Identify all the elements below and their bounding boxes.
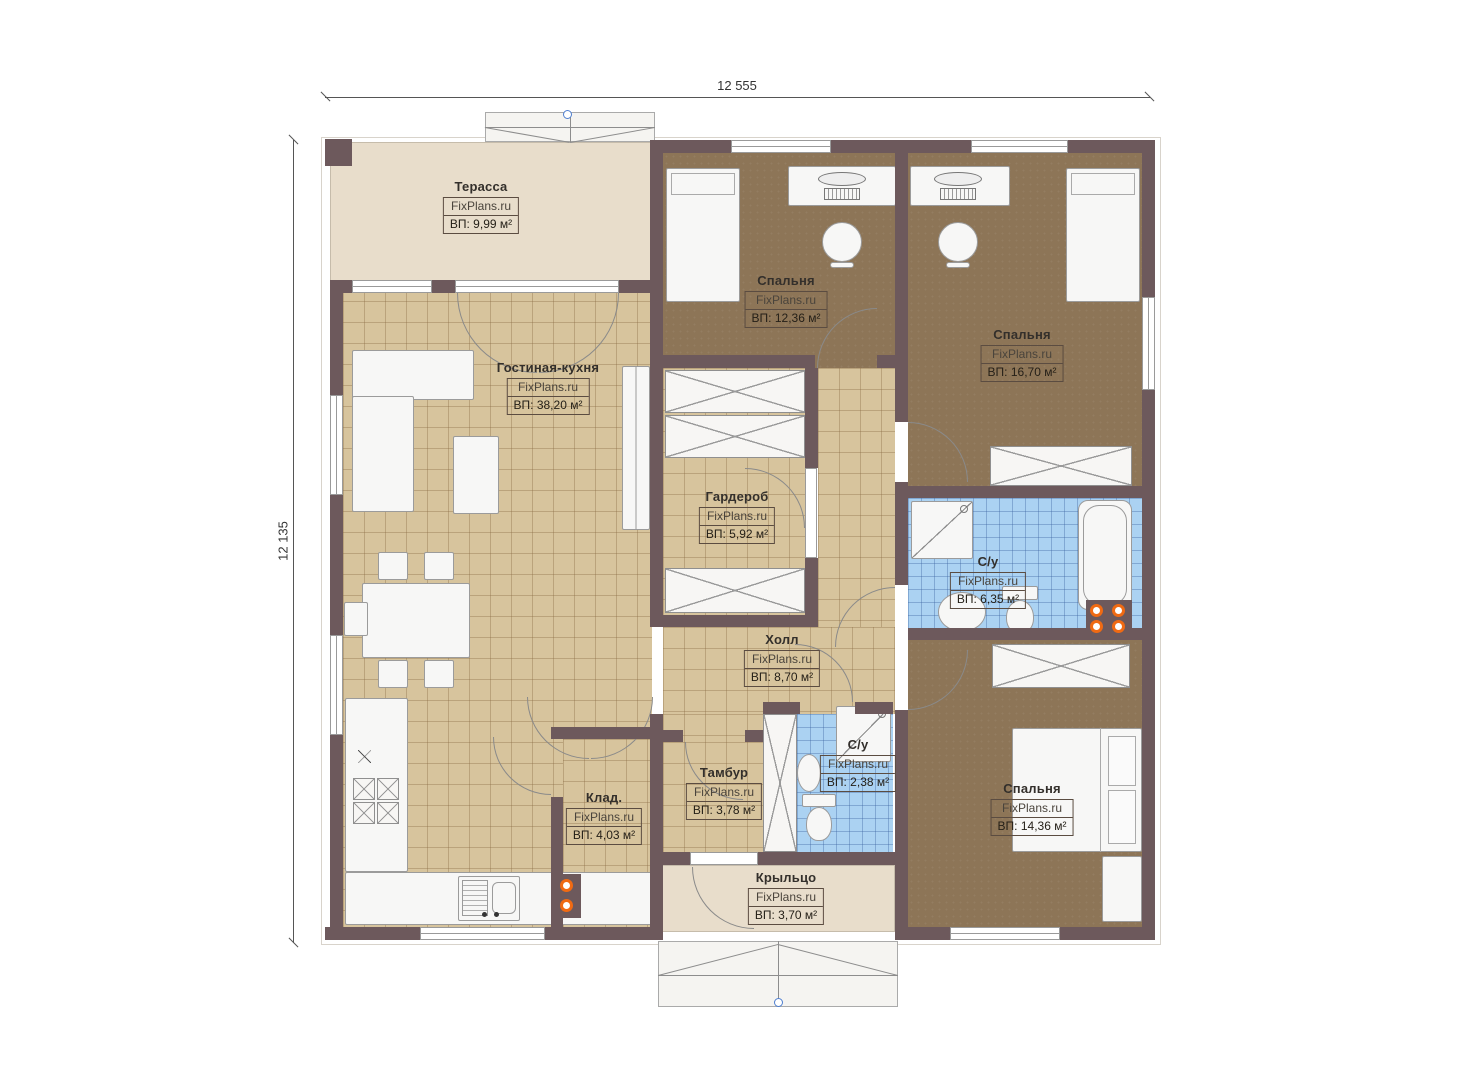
wall	[895, 852, 908, 935]
wall	[895, 140, 908, 422]
stove-burner	[377, 802, 399, 824]
wardrobe-cabinet	[992, 644, 1130, 688]
room-label-porch: Крыльцо FixPlans.ru ВП: 3,70 м²	[748, 870, 824, 925]
dimension-width-label: 12 555	[717, 78, 757, 93]
bed-line	[1100, 728, 1101, 852]
room-name: Тамбур	[700, 765, 748, 780]
room-name: Клад.	[586, 790, 622, 805]
room-name: Терасса	[455, 179, 508, 194]
room-name: Гостиная-кухня	[497, 360, 599, 375]
toilet	[806, 807, 832, 841]
wall	[908, 486, 1142, 498]
faucet-dot	[494, 912, 499, 917]
room-area: ВП: 16,70 м²	[982, 364, 1063, 381]
room-name: С/у	[978, 554, 999, 569]
watermark: FixPlans.ru	[746, 292, 827, 310]
room-name: Спальня	[1003, 781, 1061, 796]
watermark: FixPlans.ru	[567, 809, 641, 827]
wall	[855, 702, 893, 714]
room-label-bedroom-3: Спальня FixPlans.ru ВП: 14,36 м²	[991, 781, 1074, 836]
room-label-storage: Клад. FixPlans.ru ВП: 4,03 м²	[566, 790, 642, 845]
sofa	[352, 396, 414, 512]
room-name: Холл	[765, 632, 798, 647]
window	[731, 140, 831, 153]
pillow	[1071, 173, 1135, 195]
dimension-height-line	[293, 140, 294, 943]
door-leaf-wardrobe	[805, 468, 817, 558]
pillow	[1108, 736, 1136, 786]
chair	[378, 660, 408, 688]
room-area: ВП: 4,03 м²	[567, 827, 641, 844]
chair-back	[830, 262, 854, 268]
room-area: ВП: 6,35 м²	[951, 591, 1025, 608]
axis-marker	[774, 998, 783, 1007]
room-label-terrace: Терасса FixPlans.ru ВП: 9,99 м²	[443, 179, 519, 234]
room-name: Спальня	[757, 273, 815, 288]
axis-marker	[563, 110, 572, 119]
watermark: FixPlans.ru	[508, 379, 589, 397]
stove-burner	[353, 778, 375, 800]
closet-cabinet	[763, 714, 797, 852]
room-label-hall: Холл FixPlans.ru ВП: 8,70 м²	[744, 632, 820, 687]
watermark: FixPlans.ru	[992, 800, 1073, 818]
room-area: ВП: 12,36 м²	[746, 310, 827, 327]
coffee-table	[453, 436, 499, 514]
window	[971, 140, 1068, 153]
pillow	[1108, 790, 1136, 844]
wardrobe-cabinet	[665, 415, 805, 458]
room-area: ВП: 5,92 м²	[700, 526, 774, 543]
chair-back	[946, 262, 970, 268]
faucet-dot	[482, 912, 487, 917]
room-label-bedroom-2: Спальня FixPlans.ru ВП: 16,70 м²	[981, 327, 1064, 382]
room-area: ВП: 14,36 м²	[992, 818, 1073, 835]
room-name: Крыльцо	[756, 870, 817, 885]
room-area: ВП: 3,78 м²	[687, 802, 761, 819]
room-area: ВП: 9,99 м²	[444, 216, 518, 233]
room-label-bathroom-1: С/у FixPlans.ru ВП: 6,35 м²	[950, 554, 1026, 609]
watermark: FixPlans.ru	[687, 784, 761, 802]
wardrobe-cabinet	[665, 568, 805, 613]
dresser	[1102, 856, 1142, 922]
hob-symbol	[358, 750, 371, 763]
window	[330, 395, 343, 495]
dimension-width-line	[325, 97, 1150, 98]
room-area: ВП: 38,20 м²	[508, 397, 589, 414]
wall	[663, 730, 683, 742]
washbasin	[797, 754, 821, 792]
dining-table	[362, 583, 470, 658]
room-label-bedroom-1: Спальня FixPlans.ru ВП: 12,36 м²	[745, 273, 828, 328]
sink-bowl	[492, 882, 516, 914]
wall	[551, 727, 663, 739]
tv-cabinet	[622, 366, 650, 530]
office-chair	[938, 222, 978, 262]
chair	[424, 552, 454, 580]
room-name: Гардероб	[705, 489, 768, 504]
chair	[424, 660, 454, 688]
wall	[663, 615, 805, 627]
watermark: FixPlans.ru	[951, 573, 1025, 591]
wall	[330, 280, 343, 940]
toilet-tank	[802, 794, 836, 807]
window	[330, 635, 343, 735]
wall	[745, 730, 763, 742]
bathtub-inner	[1083, 505, 1127, 605]
room-label-tambour: Тамбур FixPlans.ru ВП: 3,78 м²	[686, 765, 762, 820]
room-label-wardrobe: Гардероб FixPlans.ru ВП: 5,92 м²	[699, 489, 775, 544]
wardrobe-cabinet	[665, 370, 805, 413]
room-area: ВП: 8,70 м²	[745, 669, 819, 686]
wall-post	[325, 139, 352, 166]
watermark: FixPlans.ru	[700, 508, 774, 526]
watermark: FixPlans.ru	[821, 756, 895, 774]
radiator	[553, 874, 581, 918]
room-area: ВП: 3,70 м²	[749, 907, 823, 924]
porch-door-frame	[690, 852, 758, 865]
watermark: FixPlans.ru	[749, 889, 823, 907]
stove-burner	[377, 778, 399, 800]
room-area: ВП: 2,38 м²	[821, 774, 895, 791]
sofa	[352, 350, 474, 400]
monitor	[934, 172, 982, 186]
wall	[650, 852, 908, 865]
watermark: FixPlans.ru	[982, 346, 1063, 364]
floor-plan-canvas: 12 555 12 135	[0, 0, 1474, 1080]
wall	[877, 355, 895, 368]
window	[352, 280, 432, 293]
wall	[650, 140, 663, 627]
wall	[895, 710, 908, 852]
wardrobe-cabinet	[990, 446, 1132, 486]
watermark: FixPlans.ru	[745, 651, 819, 669]
shower-head	[960, 505, 968, 513]
window	[420, 927, 545, 940]
window	[1142, 297, 1155, 390]
wall	[895, 482, 908, 585]
stove-burner	[353, 802, 375, 824]
radiator	[1086, 600, 1132, 636]
keyboard	[940, 188, 976, 200]
room-label-living: Гостиная-кухня FixPlans.ru ВП: 38,20 м²	[497, 360, 599, 415]
dimension-height-label: 12 135	[276, 521, 291, 561]
keyboard	[824, 188, 860, 200]
room-label-bathroom-2: С/у FixPlans.ru ВП: 2,38 м²	[820, 737, 896, 792]
pillow	[671, 173, 735, 195]
wall	[763, 702, 800, 714]
window	[950, 927, 1060, 940]
room-name: С/у	[848, 737, 869, 752]
sink-drainer	[462, 880, 488, 916]
wall	[1142, 140, 1155, 940]
wall	[805, 368, 818, 468]
monitor	[818, 172, 866, 186]
watermark: FixPlans.ru	[444, 198, 518, 216]
office-chair	[822, 222, 862, 262]
wall	[650, 714, 663, 935]
chair	[378, 552, 408, 580]
wall	[663, 355, 815, 368]
wall	[805, 558, 818, 627]
chair	[344, 602, 368, 636]
room-name: Спальня	[993, 327, 1051, 342]
terrace-door-frame	[455, 280, 619, 293]
